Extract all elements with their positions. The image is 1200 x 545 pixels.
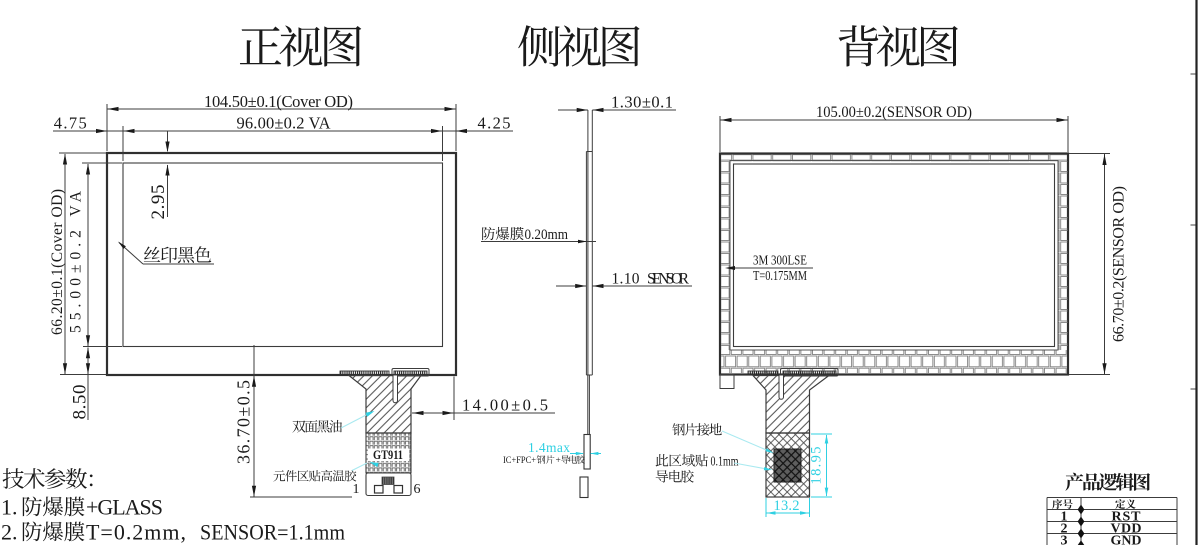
svg-text:14.00±0.5: 14.00±0.5	[462, 396, 548, 415]
svg-text:4.25: 4.25	[478, 114, 511, 133]
svg-text:105.00±0.2(SENSOR OD): 105.00±0.2(SENSOR OD)	[816, 104, 972, 121]
svg-text:1: 1	[353, 482, 360, 497]
svg-text:4.75: 4.75	[54, 114, 87, 133]
svg-text:2.95: 2.95	[148, 185, 169, 220]
svg-text:6: 6	[414, 482, 421, 497]
svg-text:1.30±0.1: 1.30±0.1	[611, 93, 673, 112]
svg-text:18.95: 18.95	[809, 447, 825, 485]
svg-text:1.10: 1.10	[612, 271, 640, 288]
svg-text:0.1mm: 0.1mm	[711, 454, 739, 469]
svg-text:+: +	[556, 456, 561, 466]
svg-text:SENSOR: SENSOR	[647, 271, 690, 288]
svg-text:T=0.2mm,: T=0.2mm,	[86, 520, 186, 545]
svg-text:96.00±0.2 VA: 96.00±0.2 VA	[237, 114, 331, 133]
svg-text:36.70±0.5: 36.70±0.5	[234, 380, 254, 464]
svg-text:66.20±0.1(Cover OD): 66.20±0.1(Cover OD)	[49, 189, 66, 335]
svg-text:SENSOR=1.1mm: SENSOR=1.1mm	[200, 520, 345, 545]
svg-text:T=0.175MM: T=0.175MM	[753, 268, 807, 283]
svg-text:0.20mm: 0.20mm	[525, 227, 569, 243]
svg-text:3M 300LSE: 3M 300LSE	[753, 253, 807, 268]
svg-text:104.50±0.1(Cover OD): 104.50±0.1(Cover OD)	[204, 92, 353, 111]
svg-text:1.4max: 1.4max	[528, 440, 570, 455]
svg-text:1.: 1.	[1, 495, 18, 520]
svg-text:66.70±0.2(SENSOR OD): 66.70±0.2(SENSOR OD)	[1111, 186, 1128, 342]
svg-text:GT911: GT911	[373, 448, 403, 462]
svg-text:13.2: 13.2	[774, 498, 800, 514]
svg-text:IC+FPC+: IC+FPC+	[503, 456, 536, 466]
svg-text:2.: 2.	[1, 520, 18, 545]
svg-text:+GLASS: +GLASS	[86, 495, 163, 520]
svg-text:8.50: 8.50	[70, 385, 91, 420]
svg-text:3: 3	[1061, 534, 1068, 545]
svg-text:GND: GND	[1111, 534, 1142, 545]
